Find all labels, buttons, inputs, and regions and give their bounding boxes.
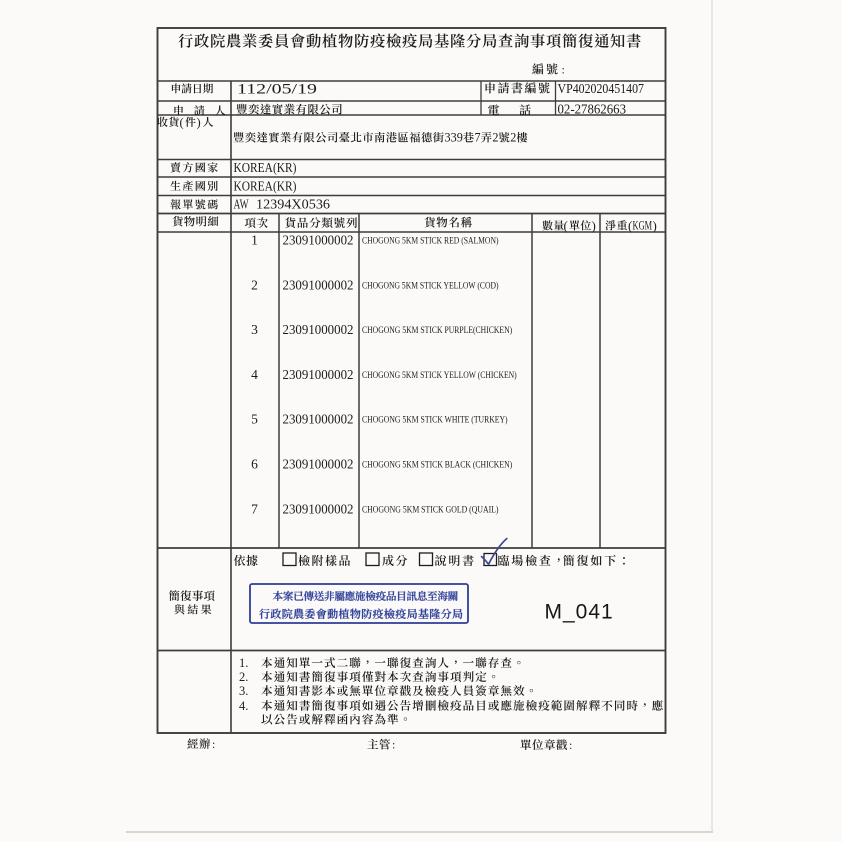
svg-text:): ) [653, 218, 657, 233]
svg-text:KOREA(KR): KOREA(KR) [234, 161, 297, 176]
svg-text:112/05/19: 112/05/19 [237, 82, 317, 98]
svg-text:23091000002: 23091000002 [283, 368, 354, 383]
svg-text:23091000002: 23091000002 [283, 413, 354, 428]
svg-text:2: 2 [492, 131, 498, 145]
svg-text:7: 7 [251, 501, 258, 516]
svg-text:6: 6 [251, 457, 258, 472]
svg-text:KOREA(KR): KOREA(KR) [234, 180, 297, 195]
svg-text:): ) [197, 116, 201, 130]
svg-text:12394X0536: 12394X0536 [256, 198, 330, 213]
svg-text:02-27862663: 02-27862663 [558, 103, 627, 118]
svg-text:4: 4 [251, 367, 258, 382]
svg-text:CHOGONG 5KM STICK RED (SALMON): CHOGONG 5KM STICK RED (SALMON) [362, 236, 499, 247]
svg-text:23091000002: 23091000002 [283, 323, 354, 338]
svg-text:): ) [592, 218, 596, 233]
svg-text:2: 2 [251, 277, 258, 292]
svg-text:23091000002: 23091000002 [283, 234, 354, 249]
svg-text:AW: AW [234, 198, 250, 213]
svg-text:1.: 1. [239, 656, 248, 670]
svg-text:CHOGONG 5KM STICK YELLOW (COD): CHOGONG 5KM STICK YELLOW (COD) [362, 280, 499, 291]
svg-text::: : [212, 737, 215, 751]
svg-text:CHOGONG 5KM STICK WHITE (TURKE: CHOGONG 5KM STICK WHITE (TURKEY) [362, 415, 508, 426]
svg-text:1: 1 [251, 233, 258, 248]
svg-text:7: 7 [475, 131, 481, 145]
svg-text:4.: 4. [239, 699, 248, 713]
svg-text:(: ( [180, 116, 184, 130]
svg-text:2.: 2. [239, 670, 248, 684]
svg-text:23091000002: 23091000002 [283, 502, 354, 517]
svg-text:CHOGONG 5KM STICK YELLOW (CHIC: CHOGONG 5KM STICK YELLOW (CHICKEN) [362, 370, 517, 381]
svg-text::: : [562, 63, 565, 77]
svg-text:(: ( [564, 218, 568, 233]
svg-text:23091000002: 23091000002 [283, 278, 354, 293]
svg-text:VP402020451407: VP402020451407 [558, 82, 645, 97]
svg-text:KGM: KGM [633, 218, 653, 233]
svg-text:CHOGONG 5KM STICK PURPLE(CHICK: CHOGONG 5KM STICK PURPLE(CHICKEN) [362, 325, 512, 336]
svg-text:3: 3 [251, 322, 258, 337]
svg-text:M_041: M_041 [545, 600, 614, 623]
svg-text:5: 5 [251, 412, 258, 427]
svg-text:CHOGONG 5KM STICK BLACK (CHICK: CHOGONG 5KM STICK BLACK (CHICKEN) [362, 460, 512, 471]
svg-text:23091000002: 23091000002 [283, 458, 354, 473]
svg-text:2: 2 [510, 131, 516, 145]
svg-text:CHOGONG 5KM STICK GOLD (QUAIL): CHOGONG 5KM STICK GOLD (QUAIL) [362, 504, 499, 515]
svg-text:339: 339 [445, 131, 463, 145]
svg-text:3.: 3. [239, 684, 248, 698]
svg-text::: : [569, 738, 572, 752]
svg-text::: : [392, 738, 395, 752]
